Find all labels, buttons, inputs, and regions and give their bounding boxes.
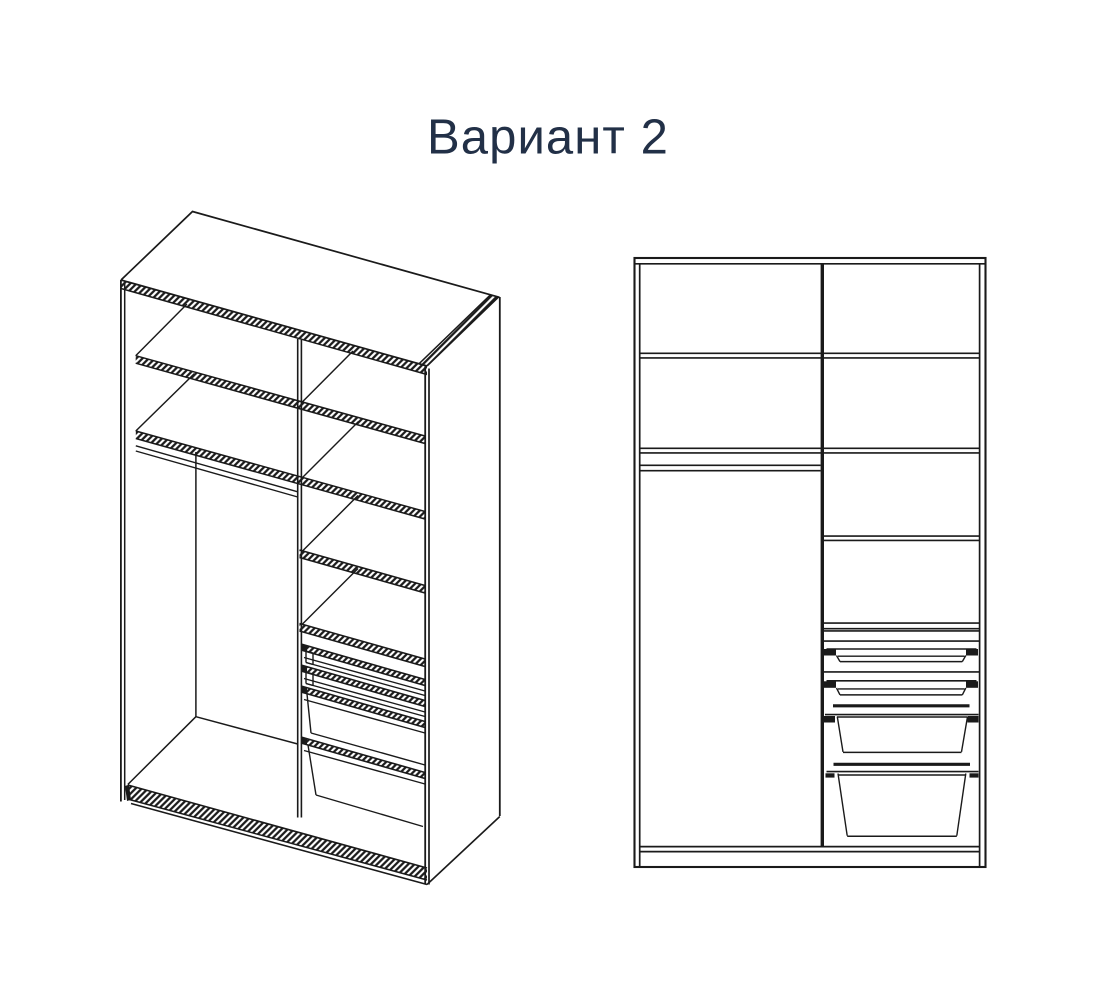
svg-text:Вариант 2: Вариант 2: [427, 110, 669, 164]
